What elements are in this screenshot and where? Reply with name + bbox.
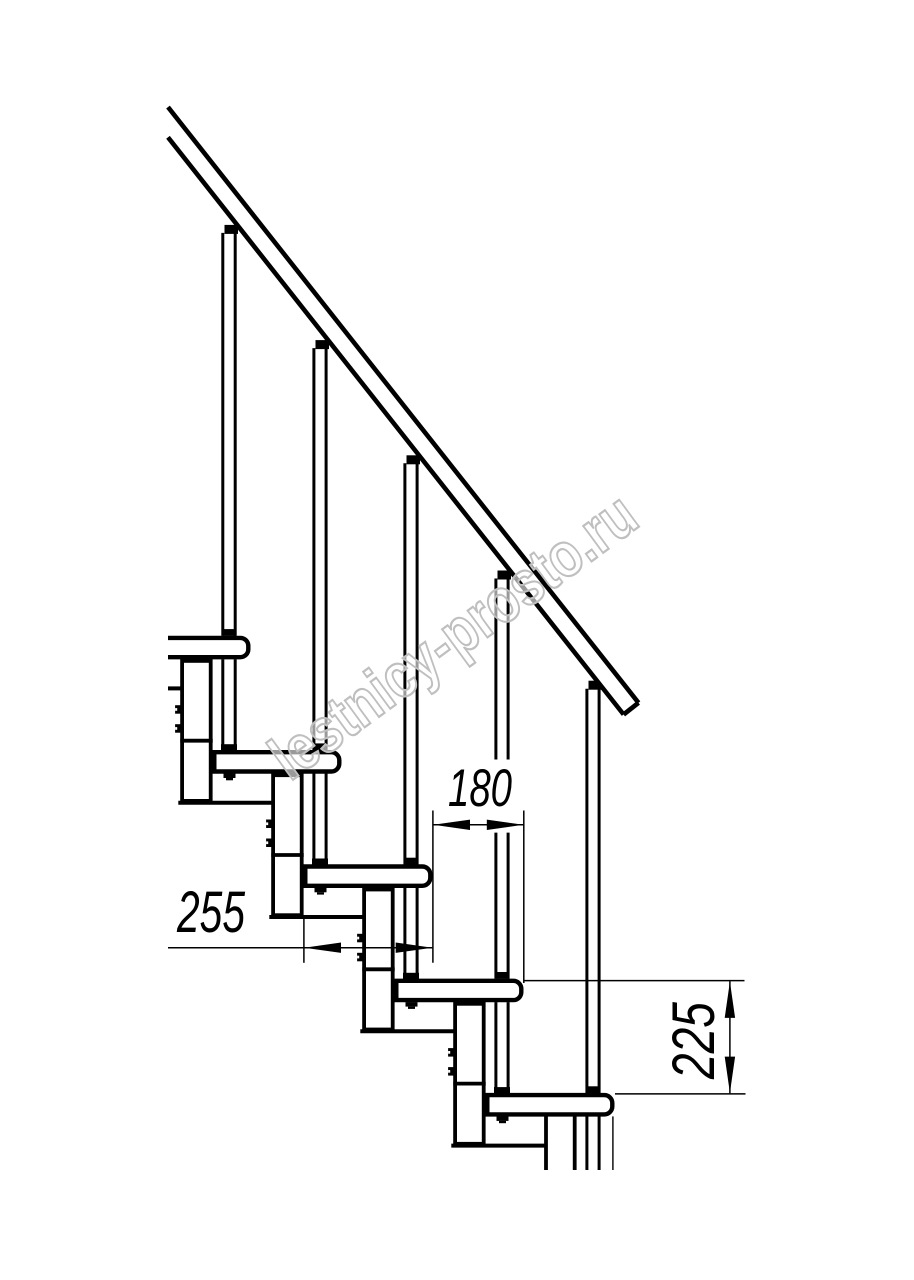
svg-text:255: 255 [176,880,245,945]
svg-text:180: 180 [448,759,512,818]
svg-text:225: 225 [660,1002,727,1080]
